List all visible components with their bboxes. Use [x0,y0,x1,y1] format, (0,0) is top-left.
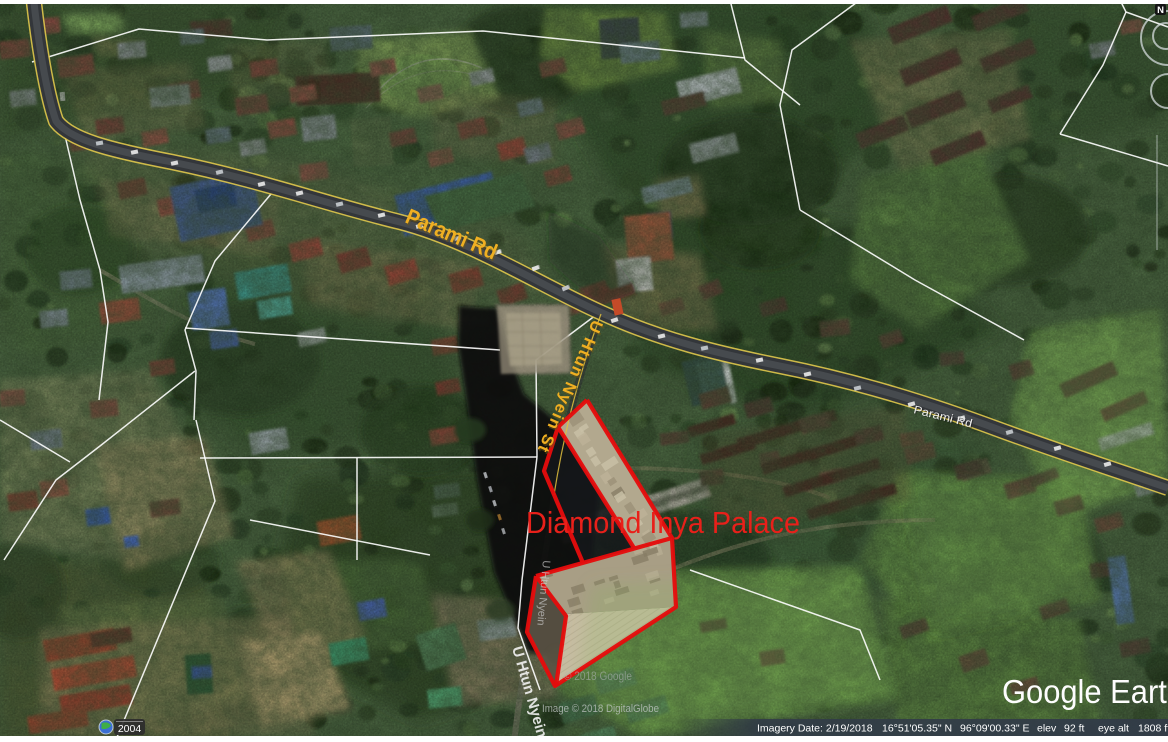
svg-text:16°51'05.35" N: 16°51'05.35" N [882,723,952,735]
svg-text:eye alt: eye alt [1098,723,1129,735]
svg-text:1808 ft: 1808 ft [1138,723,1168,735]
svg-text:N: N [1157,5,1164,16]
svg-text:2004: 2004 [118,723,142,735]
svg-text:Image © 2018 DigitalGlobe: Image © 2018 DigitalGlobe [542,703,659,715]
svg-text:96°09'00.33" E: 96°09'00.33" E [960,723,1030,735]
svg-text:elev: elev [1037,723,1057,735]
svg-text:Google Earth: Google Earth [1002,673,1168,710]
svg-text:Diamond Inya Palace: Diamond Inya Palace [526,505,800,540]
svg-text:92 ft: 92 ft [1064,723,1085,735]
svg-text:Imagery Date: 2/19/2018: Imagery Date: 2/19/2018 [757,723,873,735]
svg-text:© 2018 Google: © 2018 Google [564,671,632,683]
